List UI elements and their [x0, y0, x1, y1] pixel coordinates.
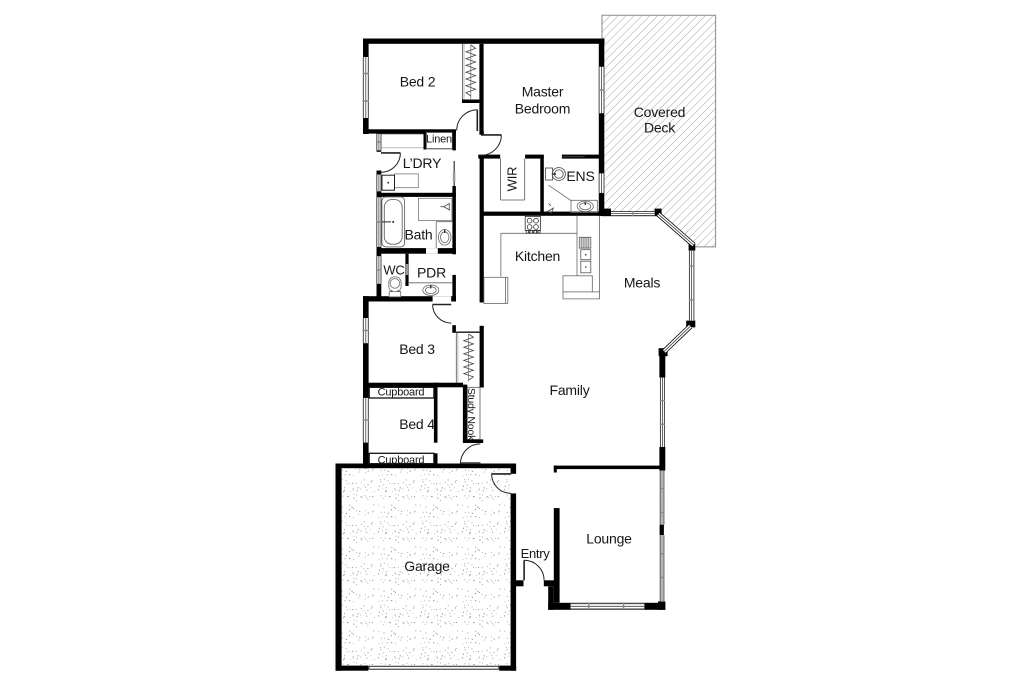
svg-text:Kitchen: Kitchen: [515, 248, 560, 264]
svg-text:WC: WC: [383, 262, 404, 277]
svg-text:Family: Family: [549, 382, 589, 398]
svg-text:Bed 3: Bed 3: [399, 341, 435, 357]
svg-text:PDR: PDR: [417, 265, 446, 281]
svg-text:Bed 2: Bed 2: [400, 74, 436, 90]
svg-text:L’DRY: L’DRY: [403, 155, 442, 171]
svg-text:Cupboard: Cupboard: [378, 455, 425, 467]
svg-text:Covered: Covered: [634, 104, 686, 120]
svg-text:Entry: Entry: [521, 546, 551, 561]
svg-text:Meals: Meals: [624, 275, 661, 291]
svg-text:Linen: Linen: [426, 133, 452, 145]
svg-text:Study Nook: Study Nook: [465, 388, 477, 441]
svg-text:Bath: Bath: [405, 227, 433, 243]
svg-text:Bed 4: Bed 4: [399, 416, 435, 432]
svg-text:Lounge: Lounge: [586, 531, 632, 547]
svg-text:WIR: WIR: [504, 167, 519, 192]
svg-text:Cupboard: Cupboard: [378, 387, 425, 399]
svg-text:Bedroom: Bedroom: [515, 101, 570, 117]
svg-text:Garage: Garage: [404, 558, 450, 574]
svg-text:ENS: ENS: [566, 168, 594, 184]
svg-text:Deck: Deck: [644, 120, 676, 136]
svg-text:Master: Master: [522, 84, 564, 100]
